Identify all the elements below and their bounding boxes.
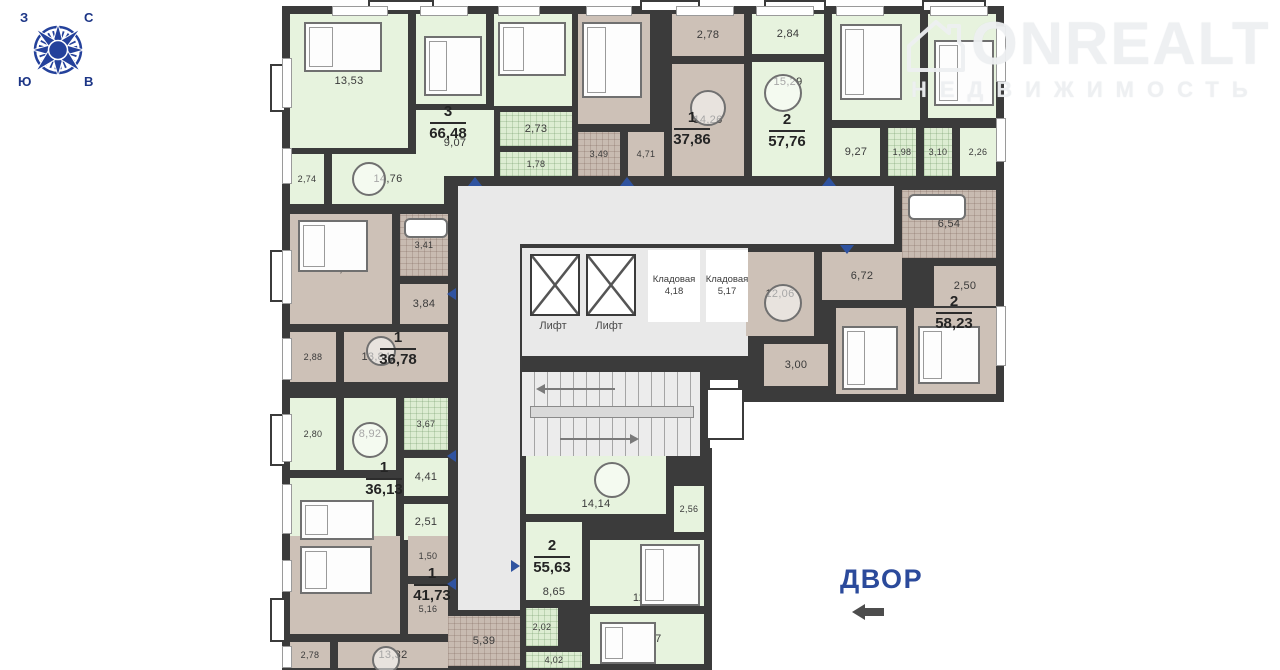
room: 2,78 — [290, 642, 330, 668]
room: 2,26 — [960, 128, 996, 176]
room-area-label: 2,50 — [954, 280, 977, 292]
room-area-label: 1,50 — [419, 551, 438, 561]
house-logo-icon — [903, 14, 969, 74]
elevator-shaft — [530, 254, 580, 316]
compass-rose-icon: З С Ю В — [12, 2, 104, 94]
elevator-x-icon — [588, 256, 634, 314]
window — [420, 6, 468, 16]
room-area-label: 13,53 — [334, 75, 363, 87]
elevator-label: Лифт — [527, 320, 579, 332]
compass-west-label: З — [20, 10, 28, 25]
apartment-rooms-count: 1 — [380, 330, 416, 350]
corridor — [458, 186, 894, 244]
room-area-label: 3,84 — [413, 298, 436, 310]
room: 2,84 — [752, 14, 824, 54]
room-area-label: 2,88 — [304, 352, 323, 362]
door-marker-icon — [468, 177, 482, 186]
room-area-label: 4,71 — [637, 149, 656, 159]
bed-icon — [300, 546, 372, 594]
door-marker-icon — [447, 578, 456, 590]
apartment-area: 36,13 — [365, 481, 403, 499]
room-area-label: 8,65 — [543, 586, 566, 598]
room-area-label: 5,16 — [419, 604, 438, 614]
apartment-rooms-count: 2 — [769, 112, 805, 132]
room: 6,72 — [822, 252, 902, 300]
elevator-label: Лифт — [583, 320, 635, 332]
room-area-label: 2,02 — [533, 622, 552, 632]
table-icon — [764, 284, 802, 322]
room-area-label: 3,67 — [417, 419, 436, 429]
window — [836, 6, 884, 16]
room: 2,56 — [674, 486, 704, 532]
room-area-label: 3,49 — [590, 149, 609, 159]
door-marker-icon — [511, 560, 520, 572]
room-area-label: 5,39 — [473, 635, 496, 647]
window — [676, 6, 734, 16]
room: 14,76 — [332, 154, 444, 204]
storage-room: Кладовая 4,18 — [648, 250, 700, 322]
apartment-rooms-count: 3 — [430, 104, 466, 124]
storage-area: 4,18 — [665, 286, 684, 298]
table-icon — [352, 422, 388, 458]
window — [282, 646, 292, 668]
room-area-label: 2,56 — [680, 504, 699, 514]
bed-icon — [600, 622, 656, 664]
onrealt-watermark: ONREALT НЕДВИЖИМОСТЬ — [903, 14, 1271, 103]
window — [498, 6, 540, 16]
window — [282, 250, 292, 304]
courtyard-arrow-icon — [852, 604, 886, 620]
room: 2,74 — [290, 154, 324, 204]
room-area-label: 9,27 — [845, 146, 868, 158]
room-area-label: 4,41 — [415, 471, 438, 483]
room-area-label: 1,78 — [527, 159, 546, 169]
room-area-label: 2,78 — [697, 29, 720, 41]
storage-label: Кладовая — [706, 274, 749, 286]
table-icon — [764, 74, 802, 112]
stair-arrow-icon — [545, 388, 615, 390]
room: 2,80 — [290, 398, 336, 470]
bed-icon — [300, 500, 374, 540]
room: 1,98 — [888, 128, 916, 176]
door-marker-icon — [447, 288, 456, 300]
apartment-rooms-count: 1 — [414, 566, 450, 586]
room: 4,02 — [526, 652, 582, 668]
room-area-label: 2,51 — [415, 516, 438, 528]
storage-label: Кладовая — [653, 274, 696, 286]
room: 2,51 — [404, 504, 448, 540]
room-area-label: 2,26 — [969, 147, 988, 157]
apartment-rooms-count: 2 — [534, 538, 570, 558]
apartment-label: 1 36,13 — [356, 460, 412, 499]
door-marker-icon — [620, 177, 634, 186]
apartment-area: 41,73 — [413, 587, 451, 605]
room-area-label: 14,14 — [581, 498, 610, 510]
bed-icon — [304, 22, 382, 72]
bed-icon — [640, 544, 700, 606]
window — [282, 414, 292, 462]
apartment-label: 1 36,78 — [370, 330, 426, 369]
room: 3,10 — [924, 128, 952, 176]
window — [996, 118, 1006, 162]
door-marker-icon — [447, 450, 456, 462]
apartment-label: 2 55,63 — [524, 538, 580, 577]
window — [282, 338, 292, 380]
window — [282, 148, 292, 184]
bed-icon — [582, 22, 642, 98]
apartment-label: 2 58,23 — [926, 294, 982, 333]
door-marker-icon — [840, 245, 854, 254]
apartment-area: 58,23 — [935, 315, 973, 333]
elevator-x-icon — [532, 256, 578, 314]
room-area-label: 2,74 — [298, 174, 317, 184]
bathtub-icon — [404, 218, 448, 238]
bed-icon — [918, 326, 980, 384]
window — [332, 6, 388, 16]
compass-north-label: С — [84, 10, 94, 25]
table-icon — [372, 646, 400, 670]
room-area-label: 2,78 — [301, 650, 320, 660]
apartment-rooms-count: 1 — [366, 460, 402, 480]
room-area-label: 1,98 — [893, 147, 912, 157]
room-area-label: 2,84 — [777, 28, 800, 40]
room: 2,88 — [290, 332, 336, 382]
window — [282, 58, 292, 108]
elevator-shaft — [586, 254, 636, 316]
door-marker-icon — [822, 177, 836, 186]
apartment-label: 2 57,76 — [759, 112, 815, 151]
apartment-area: 37,86 — [673, 131, 711, 149]
room: 3,49 — [578, 132, 620, 176]
storage-room: Кладовая 5,17 — [706, 250, 748, 322]
bed-icon — [424, 36, 482, 96]
room: 5,39 — [448, 616, 520, 666]
room-area-label: 2,80 — [304, 429, 323, 439]
stair-arrow-icon — [560, 438, 630, 440]
window — [756, 6, 814, 16]
bed-icon — [298, 220, 368, 272]
apartment-area: 66,48 — [429, 125, 467, 143]
room-area-label: 4,02 — [545, 655, 564, 665]
bed-icon — [840, 24, 902, 100]
balcony-bay — [270, 598, 286, 642]
apartment-area: 57,76 — [768, 133, 806, 151]
room-area-label: 3,00 — [785, 359, 808, 371]
apartment-label: 1 37,86 — [662, 110, 722, 149]
room: 2,78 — [672, 14, 744, 56]
room-area-label: 3,41 — [415, 240, 434, 250]
window — [586, 6, 632, 16]
room: 3,84 — [400, 284, 448, 324]
apartment-label: 3 66,48 — [418, 104, 478, 143]
apartment-area: 36,78 — [379, 351, 417, 369]
storage-area: 5,17 — [718, 286, 737, 298]
apartment-rooms-count: 2 — [936, 294, 972, 314]
watermark-brand: ONREALT — [971, 14, 1271, 74]
apartment-rooms-count: 1 — [674, 110, 710, 130]
bed-icon — [842, 326, 898, 390]
window — [282, 560, 292, 592]
room-area-label: 6,72 — [851, 270, 874, 282]
courtyard-label: ДВОР — [840, 564, 923, 595]
room: 4,71 — [628, 132, 664, 176]
room: 9,27 — [832, 128, 880, 176]
corridor — [458, 186, 520, 610]
room-area-label: 2,73 — [525, 123, 548, 135]
room: 1,78 — [500, 152, 572, 176]
compass-east-label: В — [84, 74, 93, 89]
room: 2,73 — [500, 112, 572, 146]
table-icon — [352, 162, 386, 196]
table-icon — [594, 462, 630, 498]
window — [282, 484, 292, 534]
compass-south-label: Ю — [18, 74, 31, 89]
room: 2,02 — [526, 608, 558, 646]
room: 3,67 — [404, 398, 448, 450]
window — [996, 306, 1006, 366]
stair-landing — [530, 406, 694, 418]
room: 3,00 — [764, 344, 828, 386]
apartment-area: 55,63 — [533, 559, 571, 577]
watermark-subtitle: НЕДВИЖИМОСТЬ — [903, 77, 1271, 103]
bed-icon — [498, 22, 566, 76]
window-bay — [706, 388, 744, 440]
room-area-label: 3,10 — [929, 147, 948, 157]
floor-plan: Лифт Лифт Кладовая 4,18 Кладовая 5,17 13… — [0, 0, 1280, 670]
bathtub-icon — [908, 194, 966, 220]
